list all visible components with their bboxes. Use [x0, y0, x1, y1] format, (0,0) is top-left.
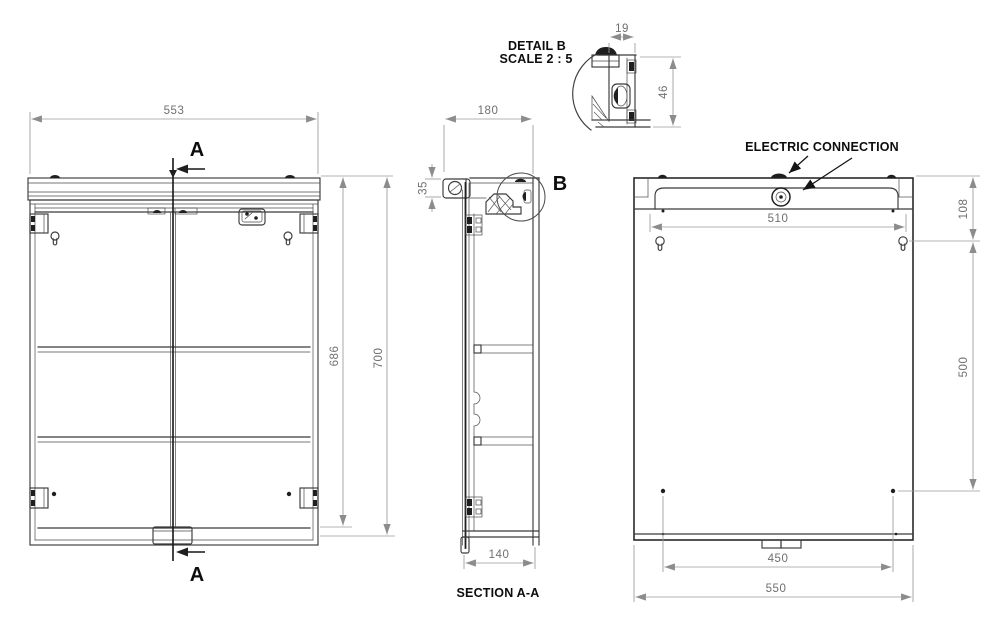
back-top-screw-left — [658, 175, 667, 178]
front-cabinet-body — [30, 200, 318, 545]
back-keyhole-right — [899, 237, 907, 251]
back-bottom-tab-right — [781, 540, 801, 548]
dim-back-rail-width-text: 510 — [768, 213, 789, 225]
drawing-canvas: A A 553 686 700 — [0, 0, 1000, 626]
back-rail-dot-left — [662, 210, 665, 213]
strip-screw-right — [285, 175, 295, 178]
dim-front-total-height-text: 700 — [373, 348, 385, 369]
dim-back-top-offset: 108 — [909, 176, 980, 241]
section-shelf-2 — [474, 437, 533, 445]
dim-back-mount-height-text: 500 — [958, 357, 970, 378]
dim-detail-height-text: 46 — [658, 85, 670, 99]
section-mirror-block — [486, 194, 521, 214]
dim-back-screw-span-text: 450 — [768, 553, 789, 565]
front-hinge-bottom-left — [30, 488, 48, 508]
front-light-strip — [28, 175, 320, 200]
detail-marker-label: B — [553, 173, 567, 195]
section-view: B 180 35 140 SECTION A-A — [418, 105, 568, 600]
dim-detail-width-text: 19 — [615, 23, 629, 35]
dim-section-depth: 180 — [444, 105, 533, 174]
front-view: A A 553 686 700 — [28, 105, 395, 586]
dim-front-width-text: 553 — [164, 105, 185, 117]
detail-b-scale: SCALE 2 : 5 — [499, 52, 572, 66]
cable-gland-bump — [771, 174, 787, 179]
strip-screw-left — [50, 175, 60, 178]
section-marker-bottom-label: A — [190, 564, 204, 586]
dim-back-rail-width: 510 — [650, 213, 906, 232]
section-top-fitting — [515, 179, 531, 203]
section-marker-top-label: A — [190, 139, 204, 161]
detail-b-title: DETAIL B — [508, 39, 566, 53]
back-screw-dot-right — [891, 489, 895, 493]
front-hinge-bottom-right — [300, 488, 318, 508]
dim-detail-height: 46 — [640, 57, 681, 127]
dim-back-mount-height: 500 — [898, 243, 980, 492]
back-view: ELECTRIC CONNECTION 510 108 500 — [634, 140, 980, 602]
dim-section-depth-text: 180 — [478, 105, 499, 117]
back-bottom-tab-left — [762, 540, 781, 548]
section-arrow-top — [176, 165, 205, 174]
front-shelf-2 — [38, 437, 310, 442]
dim-front-body-height-text: 686 — [329, 346, 341, 367]
front-hinge-top-left — [30, 214, 48, 233]
section-shelf-1 — [474, 345, 533, 353]
dim-light-height: 35 — [418, 164, 442, 212]
front-screw-dot-right — [287, 492, 291, 496]
dim-body-depth: 140 — [464, 547, 535, 569]
detail-b-drawing — [573, 47, 650, 130]
front-sensor-switch — [239, 209, 265, 225]
electric-connection-arrow-1 — [789, 156, 808, 173]
dim-detail-width: 19 — [609, 23, 635, 53]
back-top-screw-right — [887, 175, 896, 178]
section-cut-line: A A — [169, 139, 205, 586]
dim-front-heights: 686 700 — [320, 176, 395, 536]
section-view-title: SECTION A-A — [457, 586, 540, 600]
back-screw-dot-left — [661, 489, 665, 493]
dim-light-height-text: 35 — [418, 181, 430, 195]
back-cabinet-outline — [634, 178, 913, 548]
front-hinge-top-right — [300, 214, 318, 233]
dim-front-width: 553 — [30, 105, 318, 174]
front-keyhole-right — [284, 232, 292, 245]
front-keyhole-left — [51, 232, 59, 245]
front-shelf-1 — [38, 347, 310, 352]
back-keyhole-left — [656, 237, 664, 251]
dim-back-top-offset-text: 108 — [958, 199, 970, 220]
dim-back-overall-width-text: 550 — [766, 583, 787, 595]
electric-connection-label: ELECTRIC CONNECTION — [745, 140, 899, 154]
back-rail-dot-right — [892, 210, 895, 213]
electric-connection-arrow-2 — [803, 158, 852, 190]
technical-drawing-page: A A 553 686 700 — [0, 0, 1000, 626]
section-body — [461, 178, 539, 553]
section-arrow-bottom — [176, 548, 205, 557]
electric-connector — [772, 188, 790, 206]
electric-connection-annotation: ELECTRIC CONNECTION — [745, 140, 899, 190]
front-screw-dot-left — [52, 492, 56, 496]
detail-b-view: DETAIL B SCALE 2 : 5 — [499, 23, 681, 130]
dim-body-depth-text: 140 — [489, 549, 510, 561]
